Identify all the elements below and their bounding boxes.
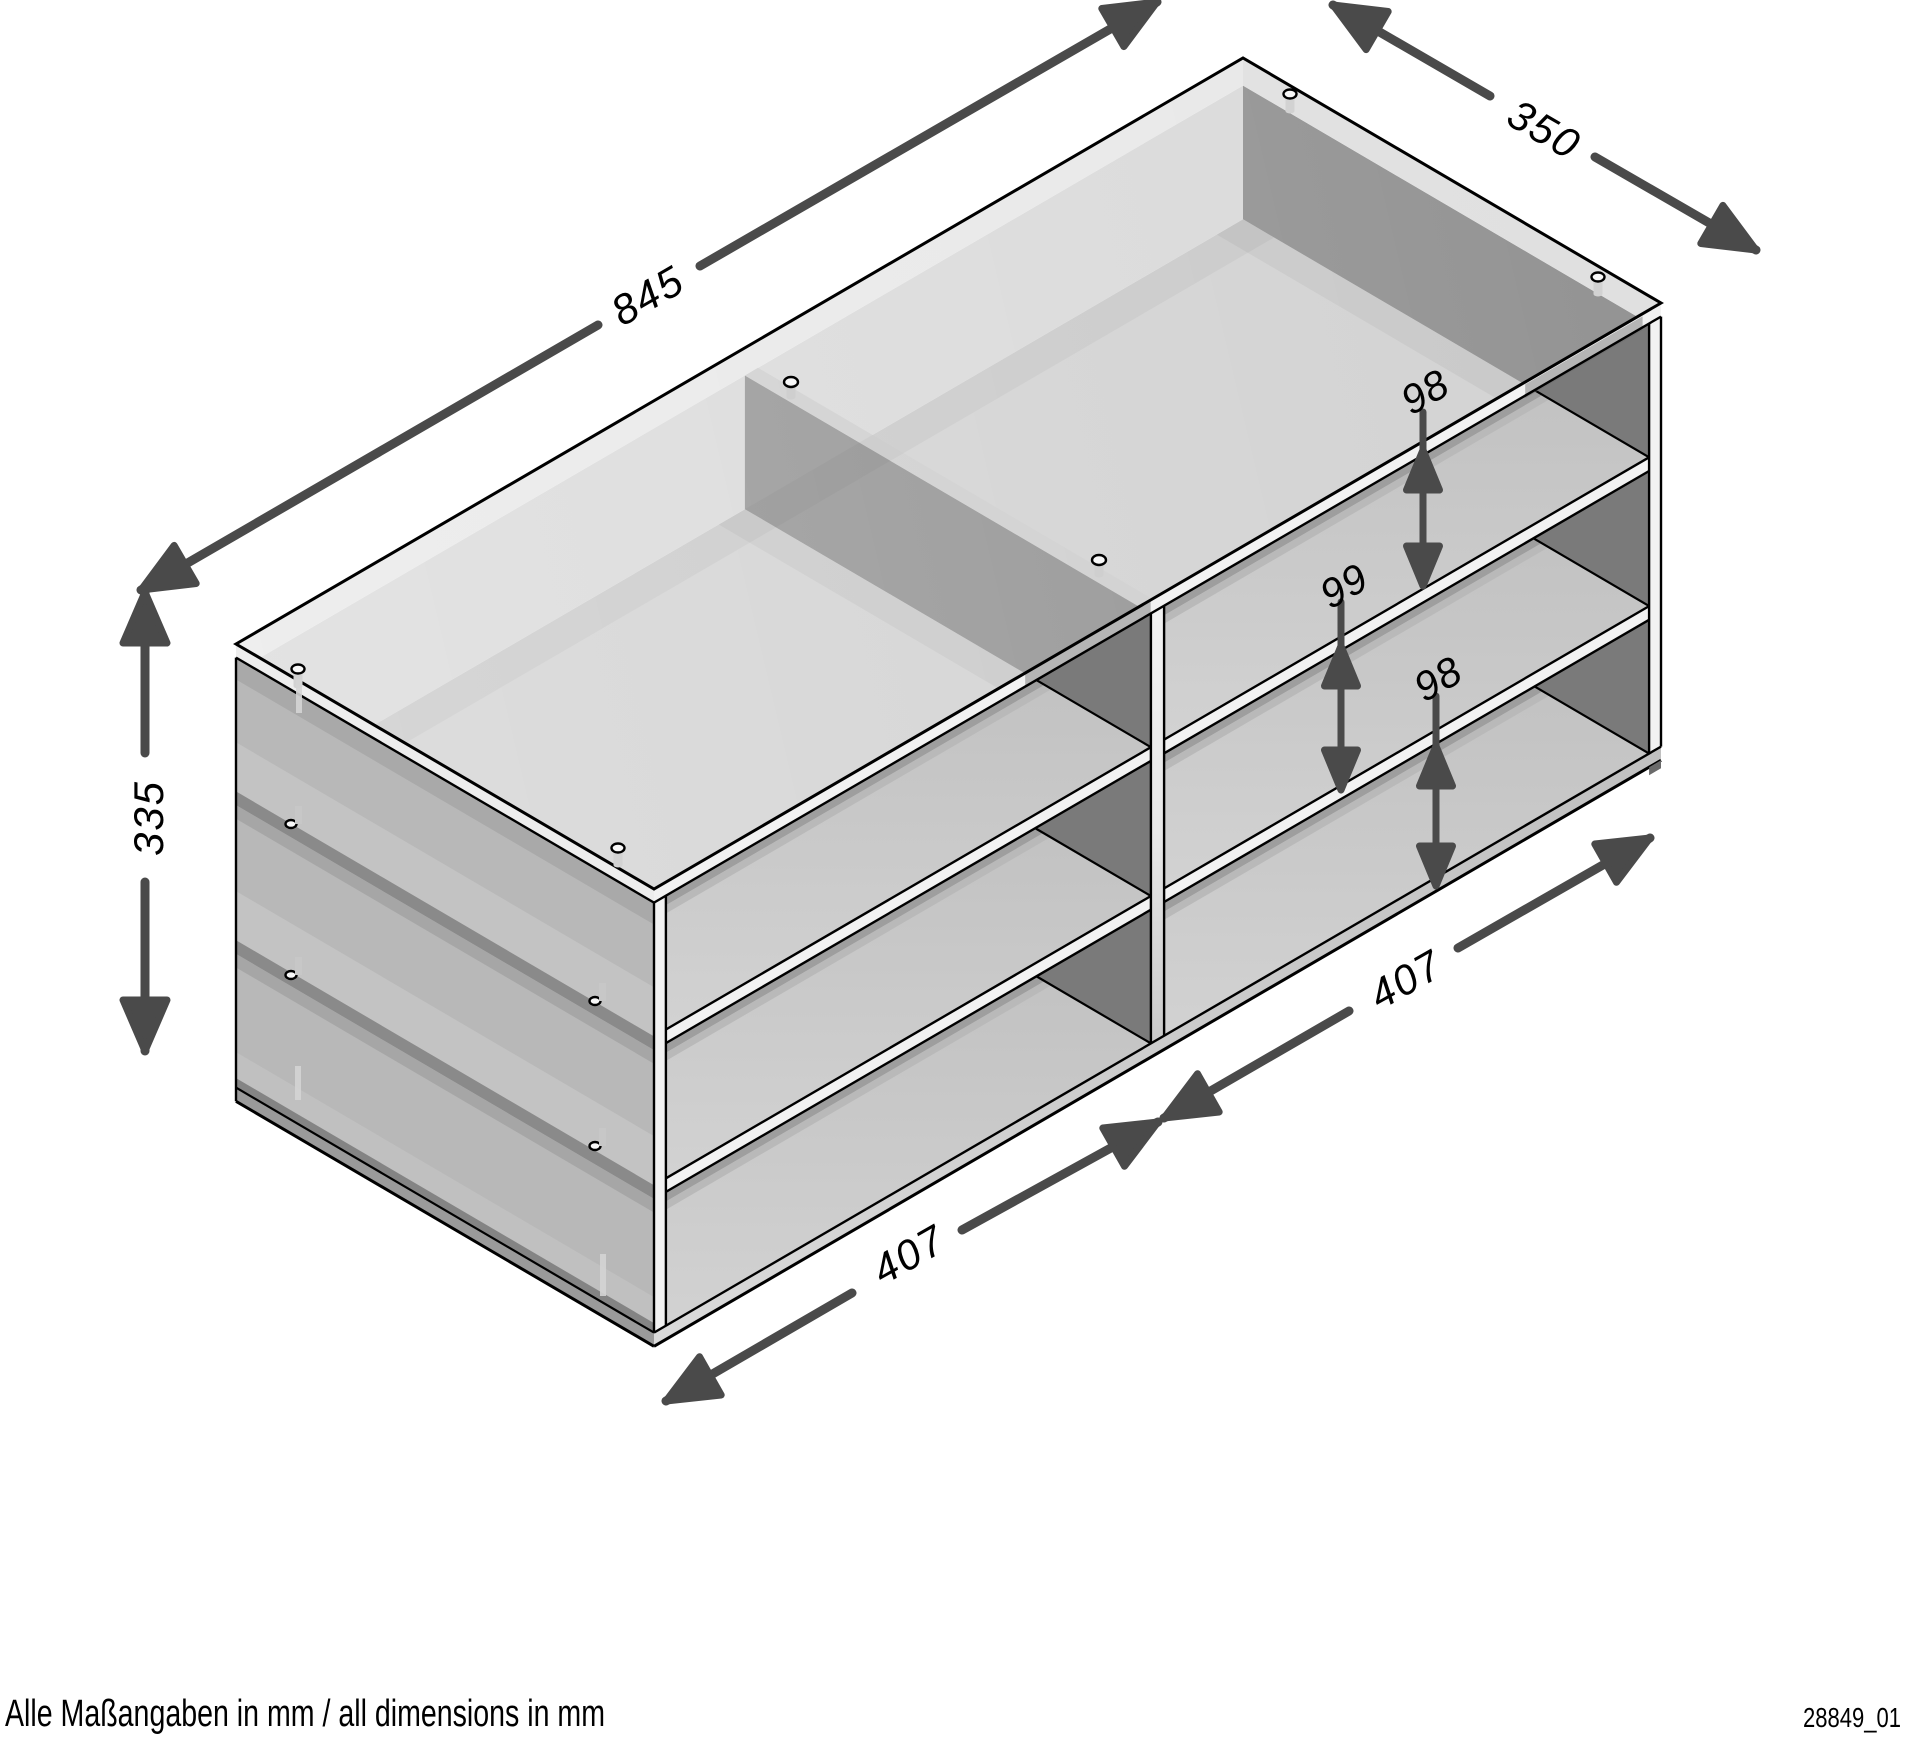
svg-text:28849_01: 28849_01 [1803, 1702, 1901, 1733]
svg-text:335: 335 [125, 780, 172, 856]
svg-text:Alle Maßangaben in mm / all di: Alle Maßangaben in mm / all dimensions i… [5, 1693, 605, 1734]
